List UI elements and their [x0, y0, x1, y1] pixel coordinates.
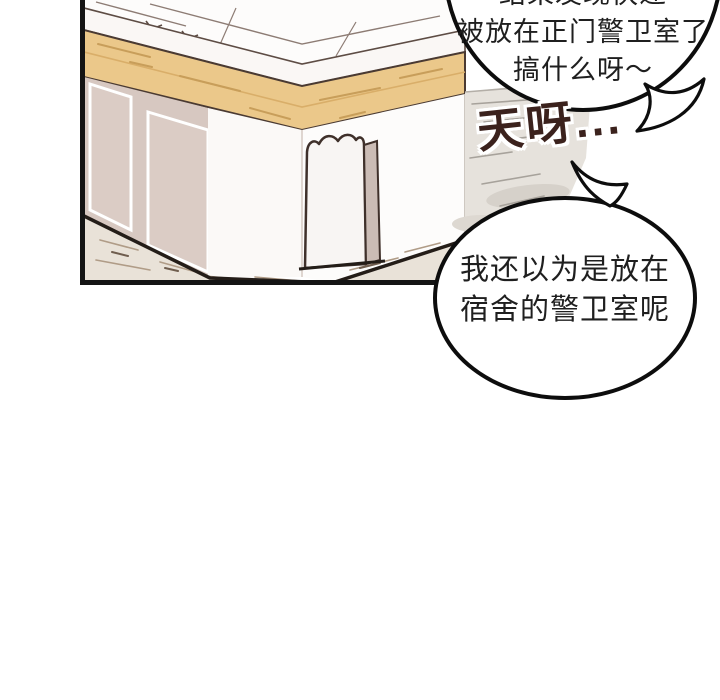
- speech-line: 结果发现快递: [448, 0, 718, 13]
- speech-line: 宿舍的警卫室呢: [433, 290, 697, 330]
- scalloped-gate-wall: [305, 135, 366, 268]
- speech-bubble-bottom-text: 我还以为是放在 宿舍的警卫室呢: [433, 250, 697, 330]
- comic-page: 结果发现快递 被放在正门警卫室了 搞什么呀～ 天呀... 我还以为是放在 宿舍的…: [0, 0, 720, 700]
- speech-line: 被放在正门警卫室了: [448, 13, 718, 51]
- speech-bubble-top-text: 结果发现快递 被放在正门警卫室了 搞什么呀～: [448, 0, 718, 89]
- panel-border-left: [80, 0, 85, 285]
- door-panel: [148, 112, 208, 272]
- left-wall-white-section: [208, 108, 302, 278]
- speech-line: 我还以为是放在: [433, 250, 697, 290]
- door-panel: [90, 84, 131, 230]
- panel-border-bottom: [80, 280, 466, 285]
- scalloped-gate-wall-side: [364, 141, 380, 264]
- speech-line: 搞什么呀～: [448, 51, 718, 89]
